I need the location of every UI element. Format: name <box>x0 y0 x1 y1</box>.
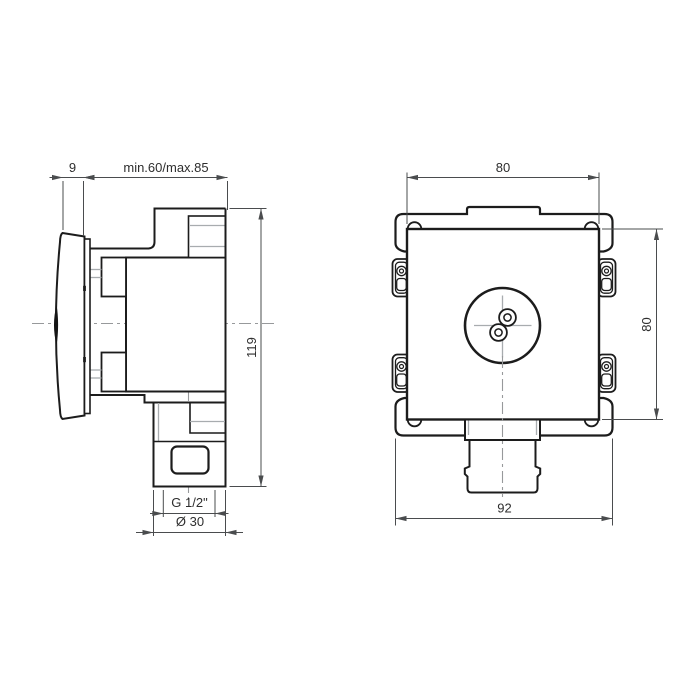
drawing-canvas: 9 min.60/max.85 119 G 1/2" <box>0 0 700 700</box>
dimension-thread-size: G 1/2" <box>150 490 229 517</box>
dim-label-body-height: 80 <box>639 317 654 331</box>
handle-dome <box>56 233 85 419</box>
port-lower <box>490 324 507 341</box>
dim-label-outlet-diameter: Ø 30 <box>176 514 204 529</box>
upper-clip-side <box>102 258 127 297</box>
front-view: 80 80 92 <box>393 160 664 526</box>
valve-rosette <box>465 288 540 363</box>
dim-label-installation-depth: min.60/max.85 <box>123 160 208 175</box>
dim-label-thread-size: G 1/2" <box>171 495 208 510</box>
handle <box>54 233 90 419</box>
port-upper <box>499 309 516 326</box>
technical-drawing: 9 min.60/max.85 119 G 1/2" <box>0 0 700 700</box>
valve-body-side <box>85 209 226 487</box>
dim-label-total-height: 119 <box>244 337 259 358</box>
thread-connection <box>172 447 209 474</box>
dim-label-plate-width: 92 <box>497 501 511 516</box>
side-view: 9 min.60/max.85 119 G 1/2" <box>32 160 278 536</box>
dim-label-body-width: 80 <box>496 160 510 175</box>
clip-right-upper <box>598 259 616 297</box>
dimension-handle-depth: 9 <box>50 160 98 236</box>
handle-notch-lower <box>83 357 86 362</box>
dim-label-handle-depth: 9 <box>69 160 76 175</box>
clip-right-lower <box>598 355 616 393</box>
handle-skirt <box>85 239 91 414</box>
cartridge-housing <box>126 258 226 392</box>
dimension-installation-depth: min.60/max.85 <box>84 160 228 210</box>
upper-port <box>189 216 226 258</box>
dimension-total-height: 119 <box>230 209 267 487</box>
handle-notch-upper <box>83 286 86 291</box>
lower-clip-side <box>102 353 127 392</box>
